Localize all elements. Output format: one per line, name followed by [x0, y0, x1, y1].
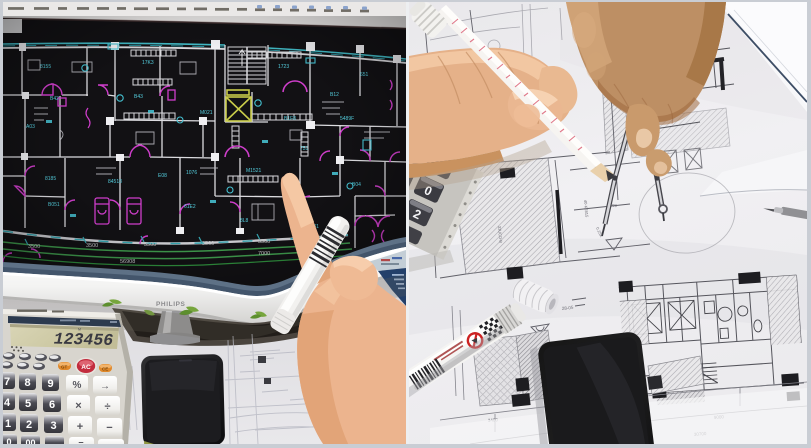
svg-text:PHILIPS: PHILIPS	[156, 301, 186, 308]
svg-text:8: 8	[24, 377, 30, 389]
svg-text:÷: ÷	[104, 401, 110, 413]
svg-text:7: 7	[4, 376, 10, 388]
svg-text:123456: 123456	[53, 329, 113, 350]
svg-text:M: M	[78, 328, 81, 332]
svg-text:+: +	[77, 421, 83, 433]
svg-text:5: 5	[25, 398, 31, 410]
svg-text:−: −	[106, 422, 112, 434]
svg-text:→: →	[100, 381, 110, 392]
svg-text:4: 4	[4, 397, 11, 409]
svg-text:%: %	[73, 380, 82, 391]
svg-text:9: 9	[47, 378, 53, 390]
svg-text:6: 6	[49, 399, 55, 411]
svg-text:CE: CE	[102, 367, 108, 372]
svg-text:AC: AC	[81, 364, 91, 371]
svg-text:GT: GT	[61, 365, 68, 370]
svg-text:2: 2	[26, 419, 32, 431]
svg-text:3: 3	[50, 420, 56, 432]
svg-text:×: ×	[75, 400, 81, 412]
svg-text:1: 1	[5, 418, 11, 430]
